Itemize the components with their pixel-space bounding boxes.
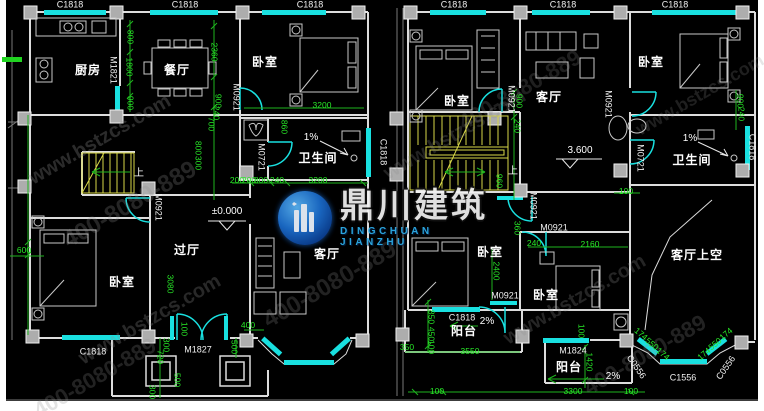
logo-name: 鼎川建筑 — [340, 189, 503, 223]
dingchuan-logo-watermark: 鼎川建筑 DINGCHUAN JIANZHU — [278, 186, 503, 250]
logo-subtitle: DINGCHUAN JIANZHU — [340, 226, 503, 248]
columns-layer — [18, 6, 749, 349]
logo-globe-icon — [278, 191, 332, 245]
stairs-layer — [82, 116, 508, 193]
furniture-layer — [32, 18, 740, 330]
cad-floor-plan-screenshot: www.bstzcs.com400-8080-889www.bstzcs.com… — [0, 0, 764, 411]
